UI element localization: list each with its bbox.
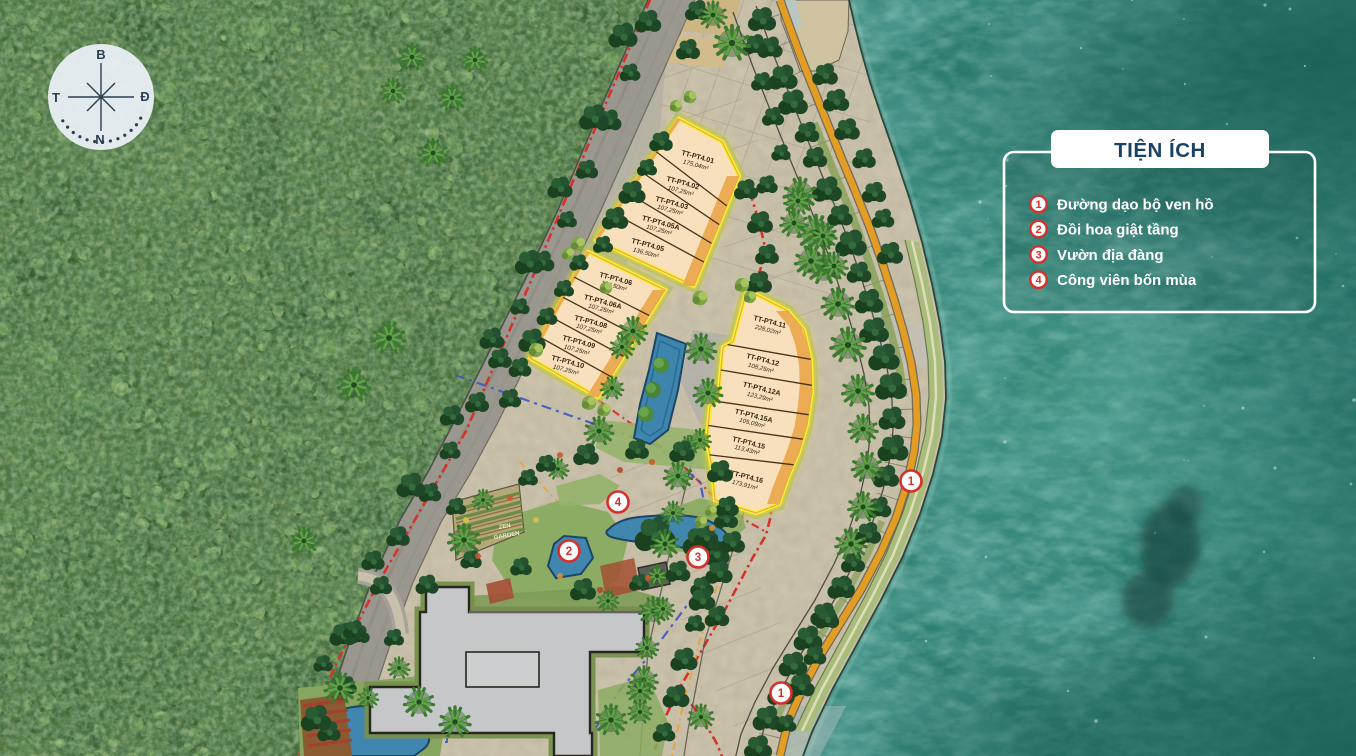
svg-text:Công viên bốn mùa: Công viên bốn mùa [1057, 272, 1197, 289]
svg-text:4: 4 [615, 497, 622, 509]
svg-text:Đường dạo bộ ven hồ: Đường dạo bộ ven hồ [1057, 197, 1214, 214]
svg-text:3: 3 [1035, 249, 1041, 261]
svg-text:1: 1 [778, 688, 785, 700]
svg-text:Đồi hoa giật tầng: Đồi hoa giật tầng [1057, 222, 1179, 239]
svg-text:1: 1 [908, 476, 915, 488]
svg-text:2: 2 [1035, 224, 1041, 236]
svg-text:T: T [52, 90, 60, 105]
svg-text:N: N [95, 132, 104, 147]
svg-text:2: 2 [566, 546, 572, 558]
svg-text:Đ: Đ [140, 89, 149, 104]
svg-text:4: 4 [1035, 275, 1042, 287]
svg-text:TIỆN ÍCH: TIỆN ÍCH [1114, 138, 1206, 162]
svg-text:1: 1 [1035, 199, 1041, 211]
svg-text:Vườn địa đàng: Vườn địa đàng [1057, 247, 1164, 264]
svg-text:3: 3 [695, 552, 701, 564]
svg-text:B: B [96, 47, 105, 62]
